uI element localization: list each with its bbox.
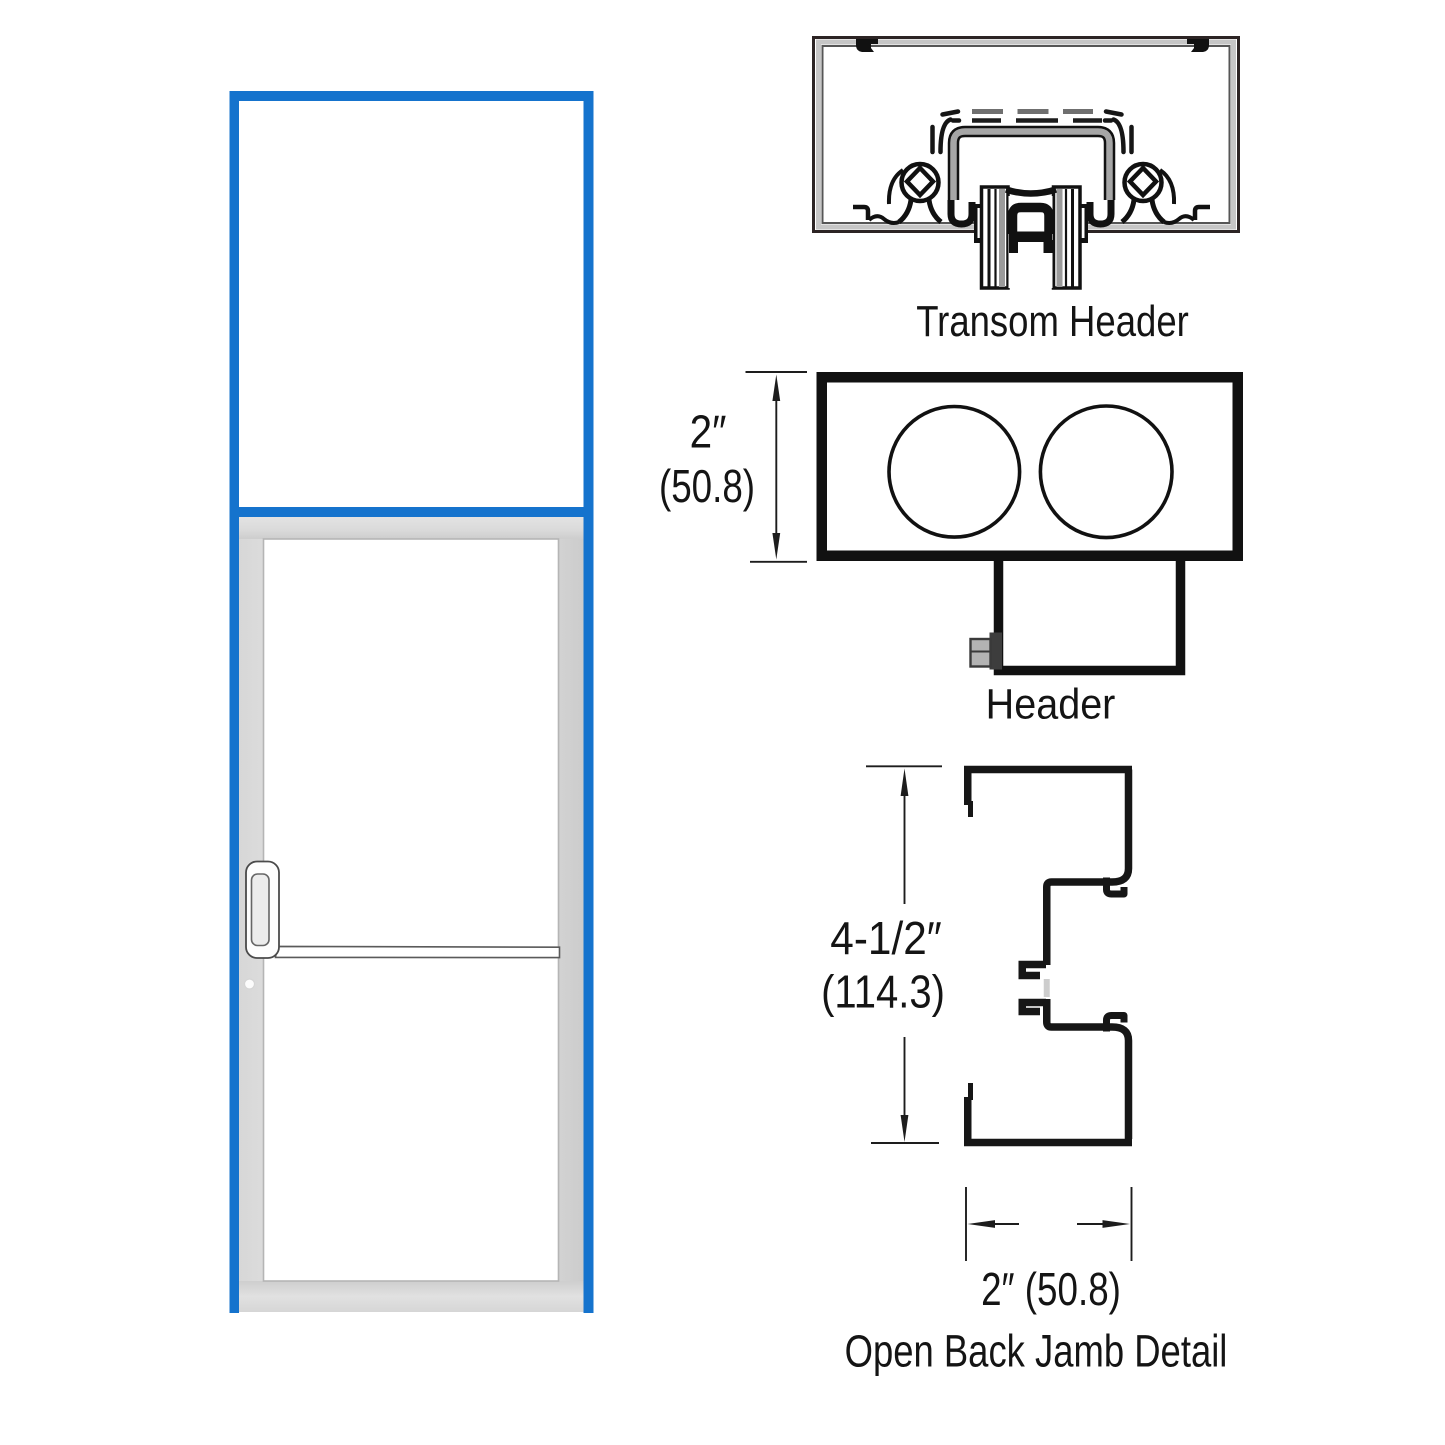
svg-text:(50.8): (50.8): [659, 460, 755, 512]
svg-text:2″: 2″: [690, 407, 727, 458]
svg-text:2″ (50.8): 2″ (50.8): [981, 1263, 1121, 1315]
svg-text:4-1/2″: 4-1/2″: [830, 913, 941, 964]
svg-text:(114.3): (114.3): [821, 967, 945, 1018]
svg-text:Transom Header: Transom Header: [916, 296, 1189, 346]
svg-text:Open Back Jamb Detail: Open Back Jamb Detail: [845, 1326, 1228, 1377]
svg-text:Header: Header: [986, 680, 1116, 728]
